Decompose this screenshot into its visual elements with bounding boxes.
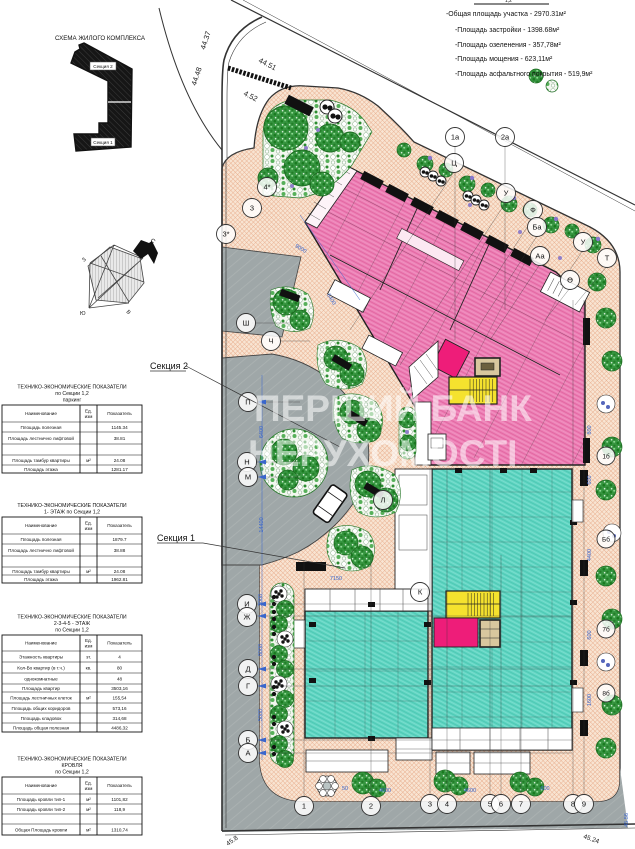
- svg-text:Площадь кладовок: Площадь кладовок: [21, 716, 63, 721]
- svg-text:4600: 4600: [464, 788, 476, 794]
- svg-text:Ж: Ж: [244, 613, 251, 622]
- svg-text:Д: Д: [245, 665, 250, 674]
- svg-text:Площадь квартир: Площадь квартир: [22, 686, 60, 691]
- svg-text:Секция 1: Секция 1: [93, 140, 113, 145]
- svg-text:4: 4: [118, 654, 121, 659]
- svg-text:118,9: 118,9: [114, 807, 126, 812]
- svg-text:38.81: 38.81: [114, 436, 126, 441]
- svg-text:-Площадь асфальтного покрытия: -Площадь асфальтного покрытия - 519,9м²: [455, 71, 593, 78]
- svg-text:155,54: 155,54: [112, 695, 126, 700]
- svg-text:8б: 8б: [602, 689, 610, 697]
- svg-text:КРОВЛЯ: КРОВЛЯ: [62, 763, 83, 769]
- svg-text:ПЕРШИЙ БАНК: ПЕРШИЙ БАНК: [254, 387, 532, 429]
- svg-text:У: У: [504, 189, 509, 198]
- svg-text:1,2: 1,2: [505, 0, 512, 4]
- svg-text:Ш: Ш: [243, 319, 250, 328]
- svg-text:У: У: [581, 238, 586, 247]
- svg-text:4400: 4400: [587, 549, 593, 561]
- svg-text:1101,82: 1101,82: [111, 797, 128, 802]
- svg-text:К: К: [418, 588, 423, 597]
- svg-text:Площадь тамбур квартиры: Площадь тамбур квартиры: [12, 569, 70, 574]
- svg-text:-Площадь мощения - 623,11м²: -Площадь мощения - 623,11м²: [455, 56, 553, 63]
- svg-text:1145.34: 1145.34: [111, 425, 128, 430]
- svg-text:по Секции 1,2: по Секции 1,2: [55, 391, 89, 397]
- svg-text:7: 7: [519, 800, 523, 809]
- svg-text:1310,74: 1310,74: [111, 827, 128, 832]
- svg-text:7150: 7150: [330, 576, 342, 582]
- svg-text:38.88: 38.88: [114, 548, 126, 553]
- svg-text:Этажность квартиры: Этажность квартиры: [19, 654, 63, 659]
- svg-text:М: М: [245, 473, 251, 482]
- svg-text:Секция 1: Секция 1: [157, 533, 195, 543]
- svg-text:Наименование: Наименование: [25, 641, 57, 646]
- svg-text:Площадь полезная: Площадь полезная: [20, 537, 62, 542]
- svg-text:1600: 1600: [587, 694, 593, 706]
- svg-text:4*: 4*: [263, 183, 270, 192]
- svg-text:м²: м²: [86, 569, 91, 574]
- svg-text:1281.17: 1281.17: [111, 467, 128, 472]
- svg-text:Площадь этажа: Площадь этажа: [24, 467, 58, 472]
- svg-text:2: 2: [369, 802, 373, 811]
- svg-text:24.08: 24.08: [114, 458, 126, 463]
- svg-text:Секция 2: Секция 2: [93, 64, 113, 69]
- svg-text:Показатель: Показатель: [107, 641, 132, 646]
- svg-text:5000: 5000: [258, 709, 264, 721]
- svg-text:ТЕХНИКО-ЭКОНОМИЧЕСКИЕ ПОКАЗАТЕ: ТЕХНИКО-ЭКОНОМИЧЕСКИЕ ПОКАЗАТЕЛИ: [17, 615, 127, 621]
- svg-text:3: 3: [428, 800, 432, 809]
- svg-text:кв.: кв.: [86, 665, 92, 670]
- svg-text:Показатель: Показатель: [107, 411, 132, 416]
- svg-text:80: 80: [117, 665, 123, 670]
- svg-text:м²: м²: [86, 695, 91, 700]
- svg-text:по Секции 1,2: по Секции 1,2: [55, 770, 89, 776]
- svg-text:Ц: Ц: [451, 159, 457, 168]
- svg-text:м²: м²: [86, 458, 91, 463]
- svg-text:Ед.: Ед.: [85, 521, 92, 526]
- svg-text:6: 6: [499, 800, 503, 809]
- svg-text:паркинг: паркинг: [63, 398, 82, 404]
- svg-text:Площадь полезная: Площадь полезная: [20, 425, 62, 430]
- svg-text:изм: изм: [85, 414, 93, 419]
- svg-text:ТЕХНИКО-ЭКОНОМИЧЕСКИЕ ПОКАЗАТЕ: ТЕХНИКО-ЭКОНОМИЧЕСКИЕ ПОКАЗАТЕЛИ: [17, 385, 127, 391]
- svg-text:НЕРУХОМОСТІ: НЕРУХОМОСТІ: [248, 433, 517, 474]
- svg-text:1879.7: 1879.7: [112, 537, 126, 542]
- svg-text:Ед.: Ед.: [85, 638, 92, 643]
- svg-text:Ба: Ба: [532, 223, 542, 232]
- svg-text:48: 48: [117, 676, 123, 681]
- svg-text:Площадь общая полезная: Площадь общая полезная: [13, 725, 70, 730]
- svg-text:50: 50: [342, 786, 348, 792]
- svg-text:Показатель: Показатель: [107, 523, 132, 528]
- svg-text:Ед.: Ед.: [85, 409, 92, 414]
- svg-text:Л: Л: [381, 496, 386, 505]
- svg-text:4: 4: [445, 800, 449, 809]
- svg-text:-Площадь озеленения - 357,78: -Площадь озеленения - 357,78м²: [455, 42, 561, 49]
- svg-text:1а: 1а: [451, 133, 460, 142]
- svg-text:Аа: Аа: [535, 252, 545, 261]
- svg-text:1б: 1б: [602, 452, 610, 460]
- svg-text:м²: м²: [86, 797, 91, 802]
- svg-text:Площадь лестнично лифтовой: Площадь лестнично лифтовой: [8, 547, 74, 553]
- svg-text:Наименование: Наименование: [25, 411, 57, 416]
- svg-text:600: 600: [540, 786, 549, 792]
- svg-text:Ө: Ө: [567, 276, 573, 285]
- svg-text:Общая Площадь кровли: Общая Площадь кровли: [15, 827, 68, 832]
- svg-text:1962.81: 1962.81: [111, 577, 128, 582]
- svg-text:6000: 6000: [258, 644, 264, 656]
- svg-text:изм: изм: [85, 526, 93, 531]
- svg-text:2-3-4-5 - ЭТАЖ: 2-3-4-5 - ЭТАЖ: [54, 621, 91, 627]
- svg-text:Кол-Во квартир (в т.ч.): Кол-Во квартир (в т.ч.): [17, 665, 65, 670]
- svg-text:Г: Г: [246, 682, 250, 691]
- svg-text:-Площадь застройки - 1398.68: -Площадь застройки - 1398.68м²: [455, 26, 560, 34]
- svg-text:7б: 7б: [602, 625, 610, 633]
- svg-text:ТЕХНИКО-ЭКОНОМИЧЕСКИЕ ПОКАЗАТЕ: ТЕХНИКО-ЭКОНОМИЧЕСКИЕ ПОКАЗАТЕЛИ: [17, 757, 127, 763]
- svg-text:314,68: 314,68: [112, 716, 126, 721]
- svg-text:Площадь тамбур квартиры: Площадь тамбур квартиры: [12, 458, 70, 463]
- svg-text:600: 600: [587, 475, 593, 484]
- svg-text:СХЕМА ЖИЛОГО КОМПЛЕКСА: СХЕМА ЖИЛОГО КОМПЛЕКСА: [55, 35, 146, 42]
- svg-text:-Общая площадь участка - 297: -Общая площадь участка - 2970.31м²: [446, 10, 567, 18]
- svg-text:4600: 4600: [379, 788, 391, 794]
- svg-text:600: 600: [587, 630, 593, 639]
- svg-text:24.08: 24.08: [114, 569, 126, 574]
- svg-text:3503,16: 3503,16: [111, 686, 128, 691]
- svg-text:ТЕХНИКО-ЭКОНОМИЧЕСКИЕ ПОКАЗАТЕ: ТЕХНИКО-ЭКОНОМИЧЕСКИЕ ПОКАЗАТЕЛИ: [17, 503, 127, 509]
- svg-text:Ед.: Ед.: [85, 781, 92, 786]
- svg-text:изм: изм: [85, 644, 93, 649]
- svg-text:Наименование: Наименование: [25, 783, 57, 788]
- svg-text:Площадь общих коридоров: Площадь общих коридоров: [12, 706, 71, 711]
- svg-text:Ч: Ч: [269, 337, 274, 346]
- svg-text:эт.: эт.: [86, 654, 91, 659]
- svg-text:1- ЭТАЖ по Секции 1,2: 1- ЭТАЖ по Секции 1,2: [44, 510, 100, 516]
- svg-text:по Секции 1,2: по Секции 1,2: [55, 628, 89, 634]
- svg-text:Показатель: Показатель: [107, 783, 132, 788]
- svg-text:Площадь лестничных клеток: Площадь лестничных клеток: [10, 695, 73, 700]
- svg-text:800: 800: [587, 425, 593, 434]
- svg-text:45.56: 45.56: [624, 813, 630, 827]
- svg-text:Площадь кровли тип-2: Площадь кровли тип-2: [17, 807, 66, 812]
- svg-text:изм: изм: [85, 786, 93, 791]
- svg-text:Площадь кровли тип-1: Площадь кровли тип-1: [17, 797, 66, 802]
- svg-text:4486,32: 4486,32: [111, 725, 128, 730]
- svg-text:Площадь этажа: Площадь этажа: [24, 577, 58, 582]
- svg-text:Секция 2: Секция 2: [150, 361, 188, 371]
- svg-text:1: 1: [302, 802, 306, 811]
- svg-text:3*: 3*: [222, 230, 229, 239]
- svg-text:м²: м²: [86, 807, 91, 812]
- svg-text:573,16: 573,16: [112, 706, 126, 711]
- svg-text:однокомнатные: однокомнатные: [24, 676, 58, 681]
- svg-text:Бб: Бб: [602, 535, 610, 543]
- svg-text:Наименование: Наименование: [25, 523, 57, 528]
- svg-text:Ф: Ф: [530, 206, 536, 215]
- svg-text:А: А: [245, 749, 250, 758]
- svg-text:м²: м²: [86, 827, 91, 832]
- svg-text:3: 3: [250, 204, 254, 213]
- svg-text:Площадь лестнично лифтовой: Площадь лестнично лифтовой: [8, 435, 74, 441]
- svg-text:Ю: Ю: [80, 311, 86, 317]
- svg-text:Т: Т: [605, 254, 610, 263]
- svg-text:2а: 2а: [501, 133, 510, 142]
- svg-text:П: П: [245, 398, 250, 407]
- svg-text:9: 9: [582, 800, 586, 809]
